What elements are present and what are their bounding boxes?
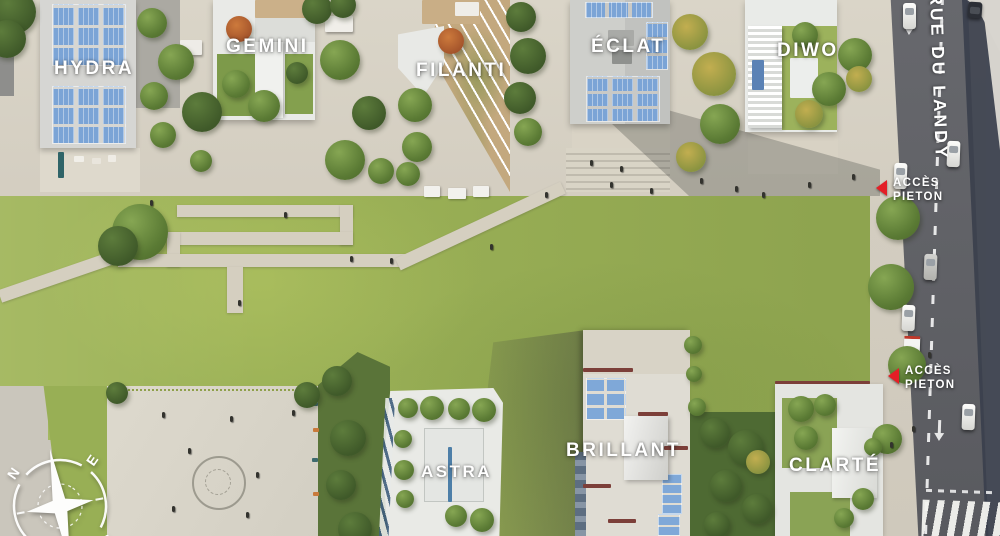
tree [868, 264, 914, 310]
label-diwo[interactable]: DIWO [777, 40, 839, 62]
bench [58, 152, 64, 178]
person-dot [808, 182, 811, 188]
planter-box [473, 186, 489, 197]
label-astra[interactable]: ASTRA [421, 462, 492, 482]
pergola [455, 2, 479, 16]
pergola [325, 16, 353, 32]
solar-panels [585, 2, 653, 18]
tree [396, 162, 420, 186]
parapet [583, 368, 633, 372]
person-dot [590, 160, 593, 166]
tree [700, 104, 740, 144]
access-pieton-marker: ACCÈS PIETON [905, 364, 955, 392]
car [902, 305, 916, 331]
solar-panels [662, 474, 682, 514]
tree [742, 494, 772, 524]
person-dot [292, 410, 295, 416]
solar-panels [586, 76, 660, 122]
person-dot [928, 352, 931, 358]
person-dot [610, 182, 613, 188]
tree [676, 142, 706, 172]
plaza-planter-row [116, 389, 306, 391]
tree [710, 470, 742, 502]
label-brillant[interactable]: BRILLANT [566, 440, 681, 462]
car [967, 2, 982, 19]
person-dot [162, 412, 165, 418]
planter-box [448, 188, 466, 199]
tree [325, 140, 365, 180]
tree [320, 40, 360, 80]
access-pieton-marker: ACCÈS PIETON [893, 176, 943, 204]
tree [510, 38, 546, 74]
tree [248, 90, 280, 122]
person-dot [620, 166, 623, 172]
tree [420, 396, 444, 420]
tree [398, 398, 418, 418]
tree [402, 132, 432, 162]
person-dot [238, 300, 241, 306]
tree [352, 96, 386, 130]
solar-panels [658, 514, 680, 536]
person-dot [852, 174, 855, 180]
bench [312, 458, 318, 462]
plaza-circle-inner [205, 469, 231, 495]
car [903, 3, 916, 29]
label-clarte[interactable]: CLARTÉ [789, 455, 881, 477]
label-gemini[interactable]: GEMINI [226, 36, 309, 58]
person-dot [256, 472, 259, 478]
access-arrow-icon [876, 180, 887, 196]
person-dot [650, 188, 653, 194]
compass-n: N [4, 465, 23, 482]
tree [472, 398, 496, 422]
tree [106, 382, 128, 404]
tree [448, 398, 470, 420]
tree [514, 118, 542, 146]
solar-panels [52, 4, 126, 66]
hydra-terrace [40, 148, 140, 192]
tree [700, 418, 730, 448]
tree [190, 150, 212, 172]
tree [704, 512, 730, 536]
person-dot [545, 192, 548, 198]
tree [158, 44, 194, 80]
tree [846, 66, 872, 92]
lawn-path [118, 254, 406, 267]
label-eclat[interactable]: ÉCLAT [591, 36, 665, 58]
person-dot [172, 506, 175, 512]
site-plan-map: N E S HYDRA GEMINI FILANTI ÉCLAT DIWO AS… [0, 0, 1000, 536]
tree [812, 72, 846, 106]
person-dot [284, 212, 287, 218]
access-line2: PIETON [893, 190, 943, 204]
tree [684, 336, 702, 354]
tree [686, 366, 702, 382]
person-dot [150, 200, 153, 206]
label-filanti[interactable]: FILANTI [416, 60, 506, 82]
label-hydra[interactable]: HYDRA [54, 58, 134, 80]
person-dot [490, 244, 493, 250]
access-line1: ACCÈS [893, 176, 943, 190]
tree [140, 82, 168, 110]
parapet [638, 412, 668, 416]
tree [394, 460, 414, 480]
lane-arrow [934, 433, 944, 446]
tree [222, 70, 250, 98]
bench [313, 428, 319, 432]
compass-e: E [83, 452, 101, 469]
lawn-path [177, 205, 353, 217]
tree [398, 88, 432, 122]
tree [98, 226, 138, 266]
parapet [775, 381, 870, 384]
terrace-furniture [108, 155, 116, 162]
person-dot [390, 258, 393, 264]
crosswalk [921, 500, 1000, 536]
person-dot [890, 442, 893, 448]
tree [396, 490, 414, 508]
tree [330, 420, 366, 456]
planter-box [424, 186, 440, 197]
tree [746, 450, 770, 474]
tree [504, 82, 536, 114]
tree [470, 508, 494, 532]
person-dot [912, 426, 915, 432]
solar-panels [752, 60, 764, 90]
tree [795, 100, 823, 128]
tree [137, 8, 167, 38]
tree [788, 396, 814, 422]
tree [368, 158, 394, 184]
person-dot [230, 416, 233, 422]
access-line2: PIETON [905, 378, 955, 392]
lawn-path [167, 232, 353, 245]
tree [294, 382, 320, 408]
tree [326, 470, 356, 500]
access-arrow-icon [888, 368, 899, 384]
person-dot [700, 178, 703, 184]
tree [852, 488, 874, 510]
person-dot [762, 192, 765, 198]
car [962, 404, 976, 430]
terrace-furniture [92, 158, 101, 164]
tree [688, 398, 706, 416]
tree [506, 2, 536, 32]
compass-s: S [99, 531, 117, 536]
parapet [583, 484, 611, 488]
solar-panels [586, 378, 626, 420]
tree [794, 426, 818, 450]
tree [150, 122, 176, 148]
tree [182, 92, 222, 132]
person-dot [188, 448, 191, 454]
tree [322, 366, 352, 396]
car [924, 254, 938, 280]
tree [438, 28, 464, 54]
terrace-furniture [74, 156, 84, 162]
tree [394, 430, 412, 448]
lawn-path [227, 267, 243, 313]
compass-rose: N E S [0, 430, 132, 536]
tree [672, 14, 708, 50]
brillant-left-band [575, 452, 586, 536]
person-dot [735, 186, 738, 192]
tree [286, 62, 308, 84]
parapet [608, 519, 636, 523]
bench [313, 492, 319, 496]
access-line1: ACCÈS [905, 364, 955, 378]
person-dot [246, 512, 249, 518]
tree [864, 438, 882, 456]
tree [445, 505, 467, 527]
person-dot [350, 256, 353, 262]
tree [692, 52, 736, 96]
lane-arrow [938, 420, 941, 433]
solar-panels [52, 86, 126, 144]
tree [814, 394, 836, 416]
tree [834, 508, 854, 528]
